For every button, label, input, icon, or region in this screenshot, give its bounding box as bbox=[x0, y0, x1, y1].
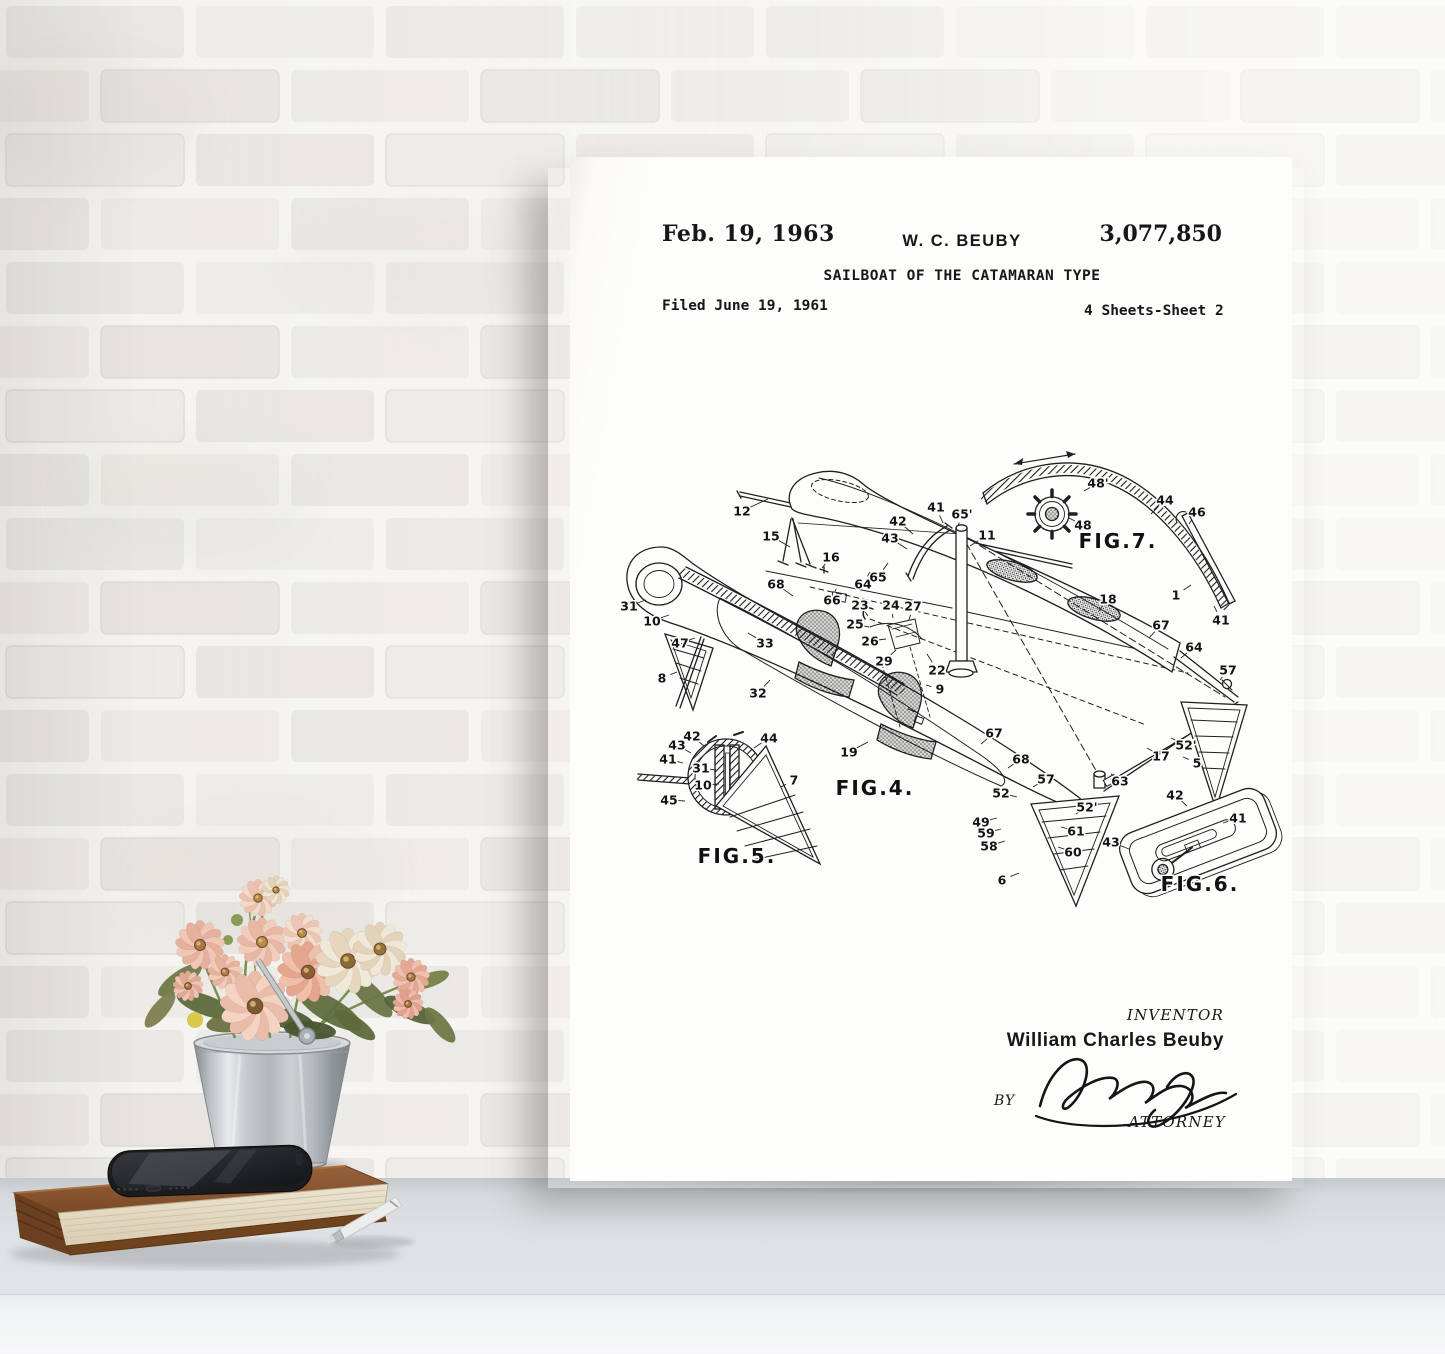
svg-text:46: 46 bbox=[1188, 505, 1206, 520]
svg-text:12: 12 bbox=[733, 504, 750, 519]
svg-text:67: 67 bbox=[985, 726, 1002, 741]
svg-text:60: 60 bbox=[1064, 845, 1082, 860]
svg-text:43: 43 bbox=[1102, 835, 1119, 850]
inventor-heading: INVENTOR bbox=[1127, 1006, 1224, 1024]
svg-text:65: 65 bbox=[869, 570, 886, 585]
daisy bbox=[237, 917, 288, 967]
svg-text:10: 10 bbox=[694, 778, 712, 793]
svg-text:57: 57 bbox=[1219, 663, 1236, 678]
svg-text:42: 42 bbox=[1166, 788, 1183, 803]
svg-text:1: 1 bbox=[1172, 588, 1181, 603]
svg-text:44: 44 bbox=[760, 731, 778, 746]
flower-bud bbox=[187, 1012, 203, 1028]
svg-text:67: 67 bbox=[1152, 618, 1169, 633]
svg-text:63: 63 bbox=[1111, 774, 1128, 789]
svg-text:64: 64 bbox=[1185, 640, 1203, 655]
svg-text:FIG.6.: FIG.6. bbox=[1161, 872, 1240, 896]
svg-text:44: 44 bbox=[1156, 493, 1174, 508]
svg-text:25: 25 bbox=[846, 617, 863, 632]
svg-text:43: 43 bbox=[668, 738, 685, 753]
attorney-label: ATTORNEY bbox=[1129, 1113, 1226, 1131]
svg-text:17: 17 bbox=[1152, 749, 1169, 764]
svg-text:31: 31 bbox=[692, 761, 709, 776]
svg-text:7: 7 bbox=[790, 773, 799, 788]
svg-text:6: 6 bbox=[998, 873, 1007, 888]
phone-port bbox=[146, 1186, 160, 1191]
svg-text:11: 11 bbox=[978, 528, 995, 543]
svg-text:42: 42 bbox=[889, 514, 906, 529]
svg-text:26: 26 bbox=[861, 634, 879, 649]
svg-text:8: 8 bbox=[658, 671, 667, 686]
svg-text:27: 27 bbox=[904, 599, 921, 614]
svg-text:58: 58 bbox=[980, 839, 997, 854]
table-props bbox=[0, 860, 560, 1354]
svg-text:43: 43 bbox=[881, 531, 898, 546]
svg-text:52: 52 bbox=[992, 786, 1009, 801]
svg-text:24: 24 bbox=[882, 598, 900, 613]
svg-text:41: 41 bbox=[659, 752, 676, 767]
svg-text:48': 48' bbox=[1087, 476, 1108, 491]
patent-poster: Feb. 19, 1963 3,077,850 W. C. BEUBY SAIL… bbox=[570, 157, 1292, 1181]
svg-text:32: 32 bbox=[749, 686, 766, 701]
svg-text:42: 42 bbox=[683, 729, 700, 744]
svg-text:9: 9 bbox=[936, 682, 945, 697]
svg-text:57: 57 bbox=[1037, 772, 1054, 787]
svg-text:16: 16 bbox=[822, 550, 840, 565]
scene: Feb. 19, 1963 3,077,850 W. C. BEUBY SAIL… bbox=[0, 0, 1445, 1354]
by-label: BY bbox=[994, 1093, 1015, 1109]
svg-text:FIG.4.: FIG.4. bbox=[836, 776, 915, 800]
inventor-name: William Charles Beuby bbox=[1007, 1030, 1224, 1052]
svg-text:22: 22 bbox=[928, 663, 945, 678]
svg-text:15: 15 bbox=[762, 529, 779, 544]
svg-text:68: 68 bbox=[1012, 752, 1029, 767]
svg-text:29: 29 bbox=[875, 654, 892, 669]
svg-text:52': 52' bbox=[1076, 800, 1097, 815]
svg-text:65': 65' bbox=[951, 507, 972, 522]
svg-text:47: 47 bbox=[671, 636, 688, 651]
svg-text:31: 31 bbox=[620, 599, 637, 614]
svg-text:19: 19 bbox=[840, 745, 857, 760]
patent-drawing: 1215166866646542434165'11311047338322324… bbox=[570, 157, 1292, 1181]
svg-text:68: 68 bbox=[767, 577, 784, 592]
svg-text:18: 18 bbox=[1099, 592, 1116, 607]
svg-text:61: 61 bbox=[1067, 824, 1084, 839]
svg-text:41: 41 bbox=[927, 500, 944, 515]
svg-text:45: 45 bbox=[660, 793, 677, 808]
svg-text:FIG.5.: FIG.5. bbox=[698, 844, 777, 868]
svg-text:23: 23 bbox=[851, 598, 868, 613]
svg-text:FIG.7.: FIG.7. bbox=[1079, 529, 1158, 553]
svg-text:52': 52' bbox=[1175, 738, 1196, 753]
phone-side-button bbox=[295, 1153, 302, 1166]
svg-text:41: 41 bbox=[1212, 613, 1229, 628]
svg-text:10: 10 bbox=[643, 614, 661, 629]
svg-text:66: 66 bbox=[823, 593, 841, 608]
svg-text:33: 33 bbox=[756, 636, 773, 651]
svg-text:5: 5 bbox=[1193, 756, 1202, 771]
svg-text:41: 41 bbox=[1229, 811, 1246, 826]
smartphone bbox=[107, 1144, 312, 1197]
flower-bud bbox=[231, 914, 243, 926]
